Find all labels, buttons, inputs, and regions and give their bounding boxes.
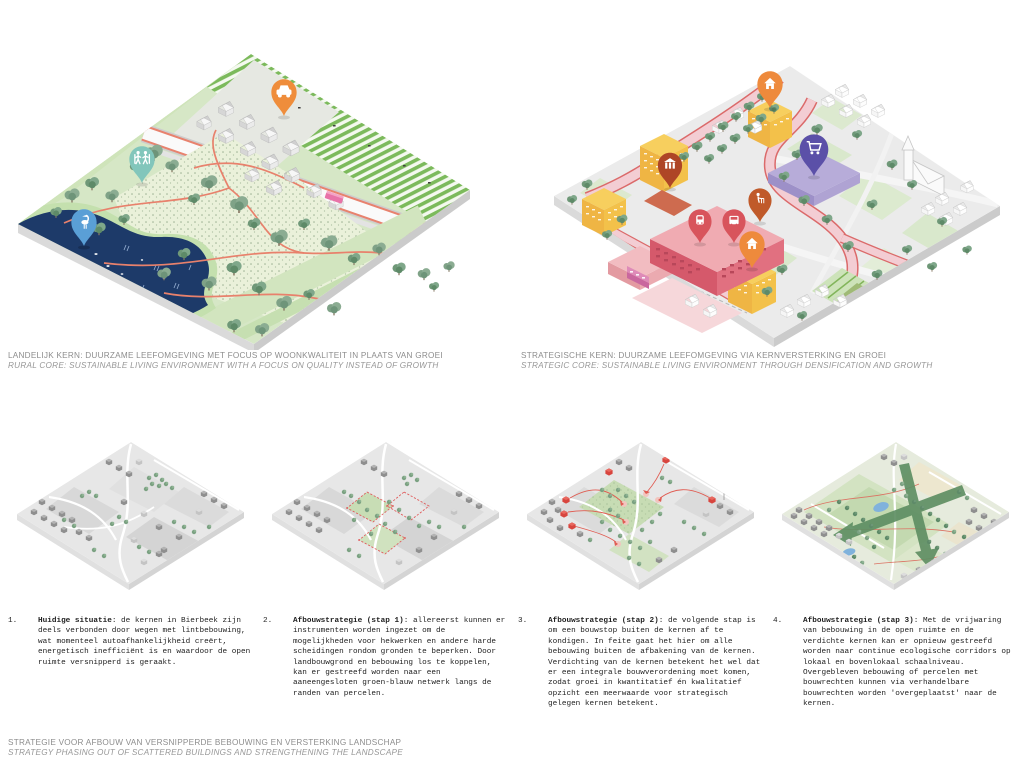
caption-strategic: STRATEGISCHE KERN: DUURZAME LEEFOMGEVING… bbox=[521, 351, 933, 371]
step-text-2: 2. Afbouwstrategie (stap 1): allereerst … bbox=[263, 616, 513, 699]
step-number: 1. bbox=[8, 616, 17, 626]
diagram-rural-core bbox=[4, 38, 474, 350]
caption-rural-nl: LANDELIJK KERN: DUURZAME LEEFOMGEVING ME… bbox=[8, 351, 443, 360]
flag-label bbox=[720, 482, 746, 500]
caption-rural-en: RURAL CORE: SUSTAINABLE LIVING ENVIRONME… bbox=[8, 361, 443, 371]
page: LANDELIJK KERN: DUURZAME LEEFOMGEVING ME… bbox=[0, 0, 1018, 764]
step-text-4: 4. Afbouwstrategie (stap 3): Met de vrij… bbox=[773, 616, 1018, 710]
diagram-strategic-core bbox=[512, 38, 1012, 350]
step-number: 3. bbox=[518, 616, 527, 626]
train-icon bbox=[696, 215, 704, 224]
footer-nl: STRATEGIE VOOR AFBOUW VAN VERSNIPPERDE B… bbox=[8, 738, 401, 747]
diagram-step2-fences bbox=[259, 432, 509, 616]
bus-icon bbox=[729, 216, 738, 226]
caption-strategic-nl: STRATEGISCHE KERN: DUURZAME LEEFOMGEVING… bbox=[521, 351, 886, 360]
page-title: STRATEGIE VOOR AFBOUW VAN VERSNIPPERDE B… bbox=[8, 738, 403, 758]
step-title: Huidige situatie bbox=[38, 617, 112, 625]
step-body: Met de vrijwaring van bebouwing in de op… bbox=[803, 617, 1011, 708]
step-title: Afbouwstrategie (stap 2) bbox=[548, 617, 659, 625]
step-number: 2. bbox=[263, 616, 272, 626]
diagram-step4-corridors bbox=[769, 432, 1018, 616]
step-title: Afbouwstrategie (stap 3) bbox=[803, 617, 914, 625]
caption-strategic-en: STRATEGIC CORE: SUSTAINABLE LIVING ENVIR… bbox=[521, 361, 933, 371]
footer-en: STRATEGY PHASING OUT OF SCATTERED BUILDI… bbox=[8, 748, 403, 758]
step-title: Afbouwstrategie (stap 1) bbox=[293, 617, 404, 625]
step-body: allereerst kunnen er instrumenten worden… bbox=[293, 617, 505, 698]
step-text-3: 3. Afbouwstrategie (stap 2): de volgende… bbox=[518, 616, 768, 710]
step-text-1: 1. Huidige situatie: de kernen in Bierbe… bbox=[8, 616, 258, 668]
caption-rural: LANDELIJK KERN: DUURZAME LEEFOMGEVING ME… bbox=[8, 351, 443, 371]
step-number: 4. bbox=[773, 616, 782, 626]
diagram-step3-bouwstop bbox=[514, 432, 764, 616]
diagram-step1-current bbox=[4, 432, 254, 616]
step-body: de volgende stap is om een bouwstop buit… bbox=[548, 617, 760, 708]
